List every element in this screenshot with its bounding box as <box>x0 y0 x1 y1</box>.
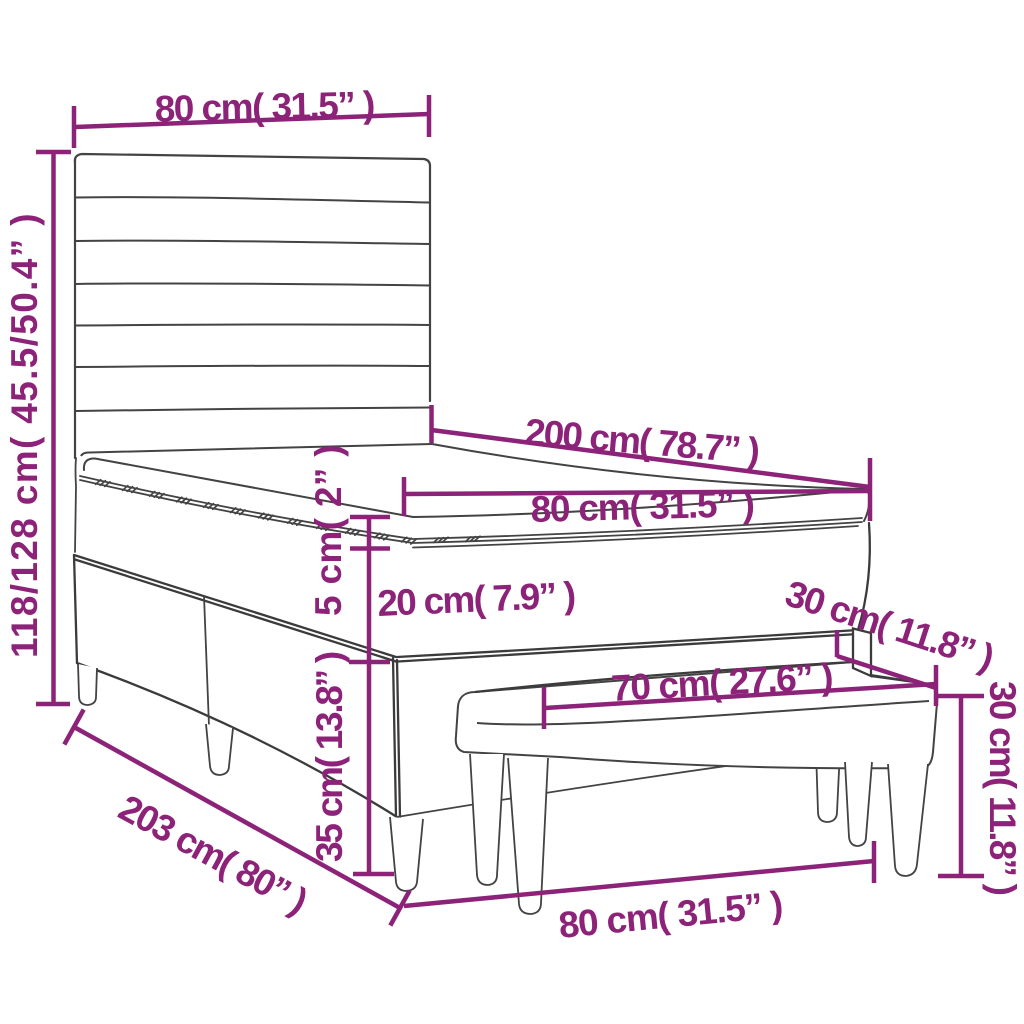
svg-text:118/128 cm( 45.5/50.4” ): 118/128 cm( 45.5/50.4” ) <box>4 212 45 658</box>
svg-text:35 cm( 13.8” ): 35 cm( 13.8” ) <box>309 652 350 862</box>
svg-text:80 cm( 31.5” ): 80 cm( 31.5” ) <box>154 84 374 130</box>
svg-text:20 cm( 7.9” ): 20 cm( 7.9” ) <box>377 574 576 624</box>
svg-text:30 cm( 11.8” ): 30 cm( 11.8” ) <box>982 681 1023 895</box>
svg-text:80 cm( 31.5” ): 80 cm( 31.5” ) <box>530 483 754 530</box>
svg-text:5 cm( 2” ): 5 cm( 2” ) <box>308 444 349 616</box>
